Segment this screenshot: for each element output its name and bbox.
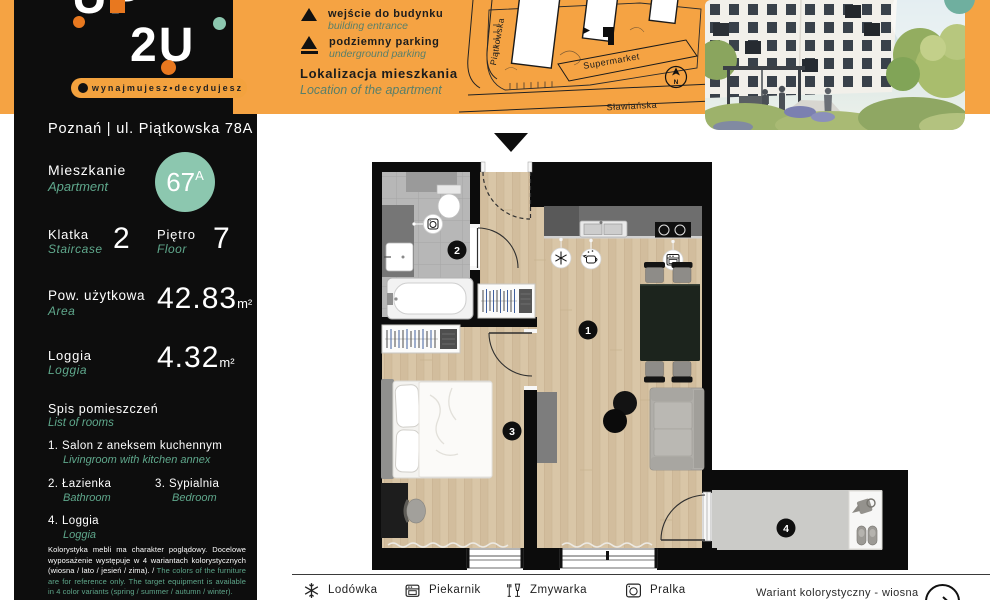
loggia-storage-box	[849, 491, 882, 549]
tagline-dot-icon	[78, 83, 88, 93]
floor-plan: 1 2 3 4	[340, 120, 940, 580]
street-label-slawianska: Sławiańska	[606, 100, 657, 113]
legend-entrance-en: building entrance	[328, 20, 443, 32]
apartment-number-suffix: A	[195, 168, 204, 183]
rooms-header-en: List of rooms	[48, 417, 114, 429]
appliance-washer-label: Pralka	[650, 582, 686, 596]
area-value: 42.83	[157, 282, 237, 315]
logo-orange-square	[110, 0, 125, 13]
appliance-fridge-label: Lodówka	[328, 582, 378, 596]
loggia-label-pl: Loggia	[48, 348, 92, 363]
floor-value: 7	[213, 222, 231, 256]
brand-tagline-pill: wynajmujesz•decydujesz	[71, 78, 247, 98]
appliance-washer: Pralka	[625, 582, 686, 599]
room-item-1-en: Livingroom with kitchen annex	[63, 454, 210, 466]
legend-parking-pl: podziemny parking	[329, 36, 439, 48]
room-item-3-en: Bedroom	[172, 492, 217, 504]
logo-orange-dot	[73, 16, 85, 28]
area-unit: m²	[237, 296, 252, 311]
apartment-card: N Piątkowska Supermarket Sławiańska wejś…	[0, 0, 990, 600]
staircase-label-en: Staircase	[48, 242, 103, 256]
dining-table	[640, 284, 700, 361]
entrance-arrow-icon	[494, 133, 528, 152]
legend-entrance-pl: wejście do budynku	[328, 8, 443, 20]
map-title-en: Location of the apartment	[300, 83, 458, 97]
floor-label-en: Floor	[157, 242, 187, 256]
bedroom-window	[467, 548, 523, 568]
loggia-unit: m²	[219, 355, 234, 370]
legend-parking-en: underground parking	[329, 48, 439, 60]
rooms-header-pl: Spis pomieszczeń	[48, 402, 158, 416]
room-item-1: 1. Salon z aneksem kuchennym	[48, 440, 222, 452]
bathroom-sink	[384, 243, 413, 271]
cooktop	[655, 222, 691, 238]
room-item-4-en: Loggia	[63, 529, 96, 541]
legend-parking-item: podziemny parking underground parking	[301, 36, 439, 60]
bedroom-wardrobe	[382, 325, 460, 353]
area-label-en: Area	[48, 304, 75, 318]
logo-teal-dot	[213, 17, 226, 30]
address: Poznań | ul. Piątkowska 78A	[48, 121, 253, 137]
apartment-number: 67	[166, 167, 195, 198]
staircase-value: 2	[113, 222, 131, 256]
snowflake-icon	[303, 582, 320, 599]
apartment-label-pl: Mieszkanie	[48, 162, 126, 178]
loggia-label-en: Loggia	[48, 363, 87, 377]
tv-panel	[537, 392, 557, 463]
appliance-dishwasher-label: Zmywarka	[530, 582, 587, 596]
street-label-piatkowska: Piątkowska	[488, 17, 506, 66]
map-title-pl: Lokalizacja mieszkania	[300, 66, 458, 81]
map-title: Lokalizacja mieszkania Location of the a…	[300, 66, 458, 97]
room-item-4: 4. Loggia	[48, 515, 99, 527]
entrance-triangle-icon	[301, 8, 317, 21]
appliance-oven: Piekarnik	[404, 582, 481, 599]
badge-bedroom: 3	[509, 426, 515, 438]
compass-n-label: N	[674, 79, 679, 86]
compass-icon: N	[666, 67, 687, 88]
dishwasher-icon	[505, 582, 522, 599]
oven-icon	[404, 582, 421, 599]
bed	[381, 379, 492, 479]
badge-livingroom: 1	[585, 325, 591, 337]
staircase-label-pl: Klatka	[48, 227, 89, 242]
appliance-fridge: Lodówka	[303, 582, 378, 599]
hallway-wardrobe	[478, 284, 535, 318]
apartment-label-en: Apartment	[48, 179, 108, 194]
badge-bathroom: 2	[454, 245, 460, 257]
room-item-2-en: Bathroom	[63, 492, 111, 504]
area-label-pl: Pow. użytkowa	[48, 288, 145, 303]
room-item-3: 3. Sypialnia	[155, 478, 219, 490]
building-photo	[705, 0, 965, 130]
loggia-value: 4.32	[157, 341, 219, 374]
toilet	[437, 185, 461, 218]
map-apartment-marker-icon	[603, 27, 614, 45]
appliance-dishwasher: Zmywarka	[505, 582, 587, 599]
arrow-right-icon	[934, 593, 952, 600]
logo-box: UP 2U wynajmujesz•decydujesz	[14, 0, 233, 114]
apartment-number-badge: 67 A	[155, 152, 215, 212]
coffee-table-2	[603, 409, 627, 433]
sofa	[650, 388, 704, 470]
livingroom-window	[560, 548, 657, 568]
room-item-2: 2. Łazienka	[48, 478, 111, 490]
floor-label-pl: Piętro	[157, 227, 196, 242]
disclaimer: Kolorystyka mebli ma charakter poglądowy…	[48, 545, 246, 598]
variant-label: Wariant kolorystyczny - wiosna	[756, 587, 919, 599]
next-variant-button[interactable]	[925, 584, 960, 600]
washer-icon	[625, 582, 642, 599]
badge-loggia: 4	[783, 523, 789, 535]
parking-triangle-icon	[301, 36, 318, 60]
logo-orange-circle	[161, 60, 176, 75]
kitchen-counter	[544, 206, 702, 239]
bathtub	[387, 278, 473, 319]
appliance-oven-label: Piekarnik	[429, 582, 481, 596]
brand-tagline: wynajmujesz•decydujesz	[88, 83, 247, 93]
bottom-divider	[292, 574, 990, 575]
legend-entrance-item: wejście do budynku building entrance	[301, 8, 443, 32]
